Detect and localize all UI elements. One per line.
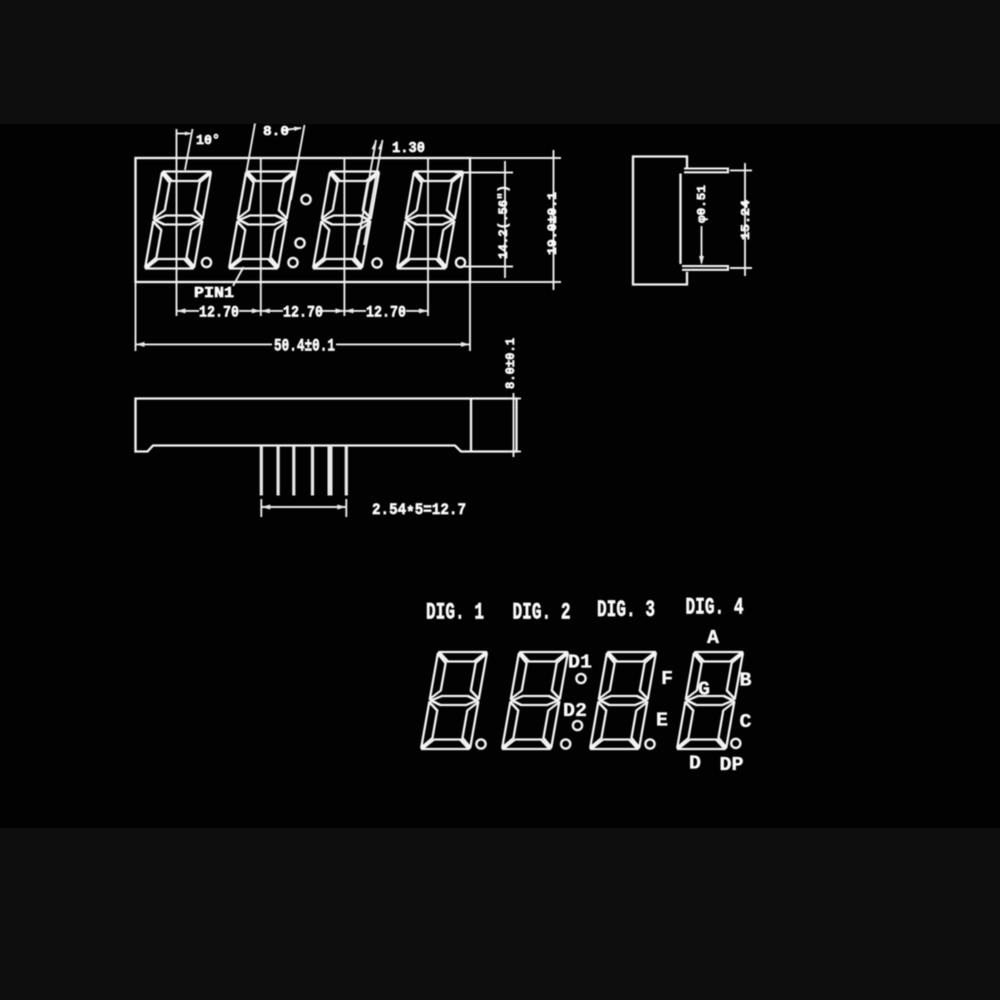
svg-text:C: C <box>740 711 752 733</box>
svg-text:E: E <box>656 710 668 732</box>
svg-text:F: F <box>661 668 673 690</box>
svg-text:DIG. 1: DIG. 1 <box>426 600 484 626</box>
svg-text:D2: D2 <box>563 700 587 722</box>
svg-text:G: G <box>698 679 710 701</box>
svg-text:DIG. 3: DIG. 3 <box>597 597 655 623</box>
svg-text:DP: DP <box>720 754 744 776</box>
svg-text:12.70: 12.70 <box>199 304 239 322</box>
svg-text:12.70: 12.70 <box>366 304 406 322</box>
svg-text:1.30: 1.30 <box>392 140 425 157</box>
svg-text:14.2(.56"): 14.2(.56") <box>496 185 511 259</box>
svg-text:D: D <box>689 753 701 775</box>
svg-text:50.4±0.1: 50.4±0.1 <box>274 337 335 357</box>
svg-text:10°: 10° <box>196 133 220 149</box>
svg-text:DIG. 2: DIG. 2 <box>513 600 571 626</box>
svg-text:PIN1: PIN1 <box>194 285 234 302</box>
svg-text:8.0: 8.0 <box>263 124 289 140</box>
svg-text:D1: D1 <box>568 652 592 674</box>
svg-text:8.0±0.1: 8.0±0.1 <box>503 338 518 389</box>
svg-text:B: B <box>740 670 752 692</box>
svg-text:19.0±0.1: 19.0±0.1 <box>545 192 560 255</box>
svg-text:A: A <box>707 627 719 649</box>
svg-text:2.54*5=12.7: 2.54*5=12.7 <box>372 501 466 522</box>
svg-text:12.70: 12.70 <box>283 304 323 322</box>
svg-text:15.24: 15.24 <box>739 200 753 240</box>
svg-text:DIG. 4: DIG. 4 <box>686 595 744 621</box>
svg-text:φ0.51: φ0.51 <box>695 185 709 223</box>
